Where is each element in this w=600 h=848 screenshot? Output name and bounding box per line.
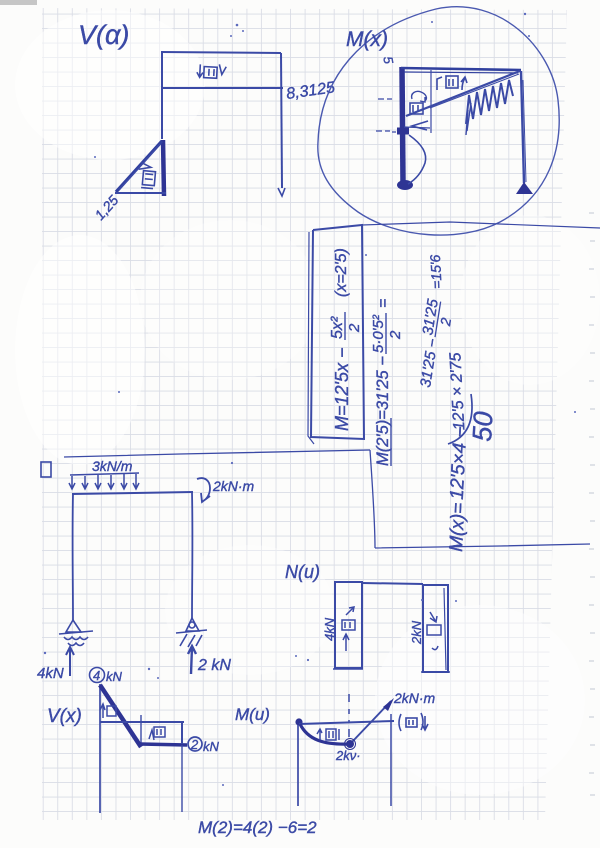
svg-text:M(x): M(x) <box>346 28 388 51</box>
svg-text:M(x)=: M(x)= <box>446 502 470 552</box>
svg-text:2 kN: 2 kN <box>197 657 231 674</box>
svg-text:M(2)=4(2) −6=2: M(2)=4(2) −6=2 <box>198 818 317 837</box>
svg-text:3kN/m: 3kN/m <box>92 458 133 474</box>
svg-text:2kN·m: 2kN·m <box>212 478 255 494</box>
svg-text:5x²: 5x² <box>329 316 346 339</box>
svg-text:5·0'5²: 5·0'5² <box>370 314 387 353</box>
svg-text:V(α): V(α) <box>78 20 129 50</box>
svg-text:(x=2'5): (x=2'5) <box>333 248 350 297</box>
svg-text:=: = <box>375 299 392 308</box>
svg-text:M(u): M(u) <box>235 705 270 724</box>
svg-text:=15'6: =15'6 <box>427 254 445 289</box>
svg-text:2: 2 <box>387 330 404 340</box>
svg-text:M(2'5)=31'25 −: M(2'5)=31'25 − <box>374 356 392 466</box>
svg-text:2kN: 2kN <box>409 620 424 645</box>
svg-text:4: 4 <box>93 668 100 683</box>
svg-text:2: 2 <box>346 323 363 333</box>
svg-text:2kν·: 2kν· <box>335 748 361 763</box>
svg-text:kN: kN <box>106 669 123 684</box>
svg-text:N(u): N(u) <box>285 562 320 582</box>
svg-text:4kN: 4kN <box>37 665 64 682</box>
svg-text:V(x): V(x) <box>47 706 82 727</box>
svg-text:2: 2 <box>190 737 199 752</box>
svg-text:50: 50 <box>467 411 499 443</box>
svg-text:M=12'5x −: M=12'5x − <box>332 348 352 432</box>
svg-text:2kN·m: 2kN·m <box>393 690 436 706</box>
svg-text:4kN: 4kN <box>322 617 337 641</box>
svg-text:kN: kN <box>203 739 220 754</box>
